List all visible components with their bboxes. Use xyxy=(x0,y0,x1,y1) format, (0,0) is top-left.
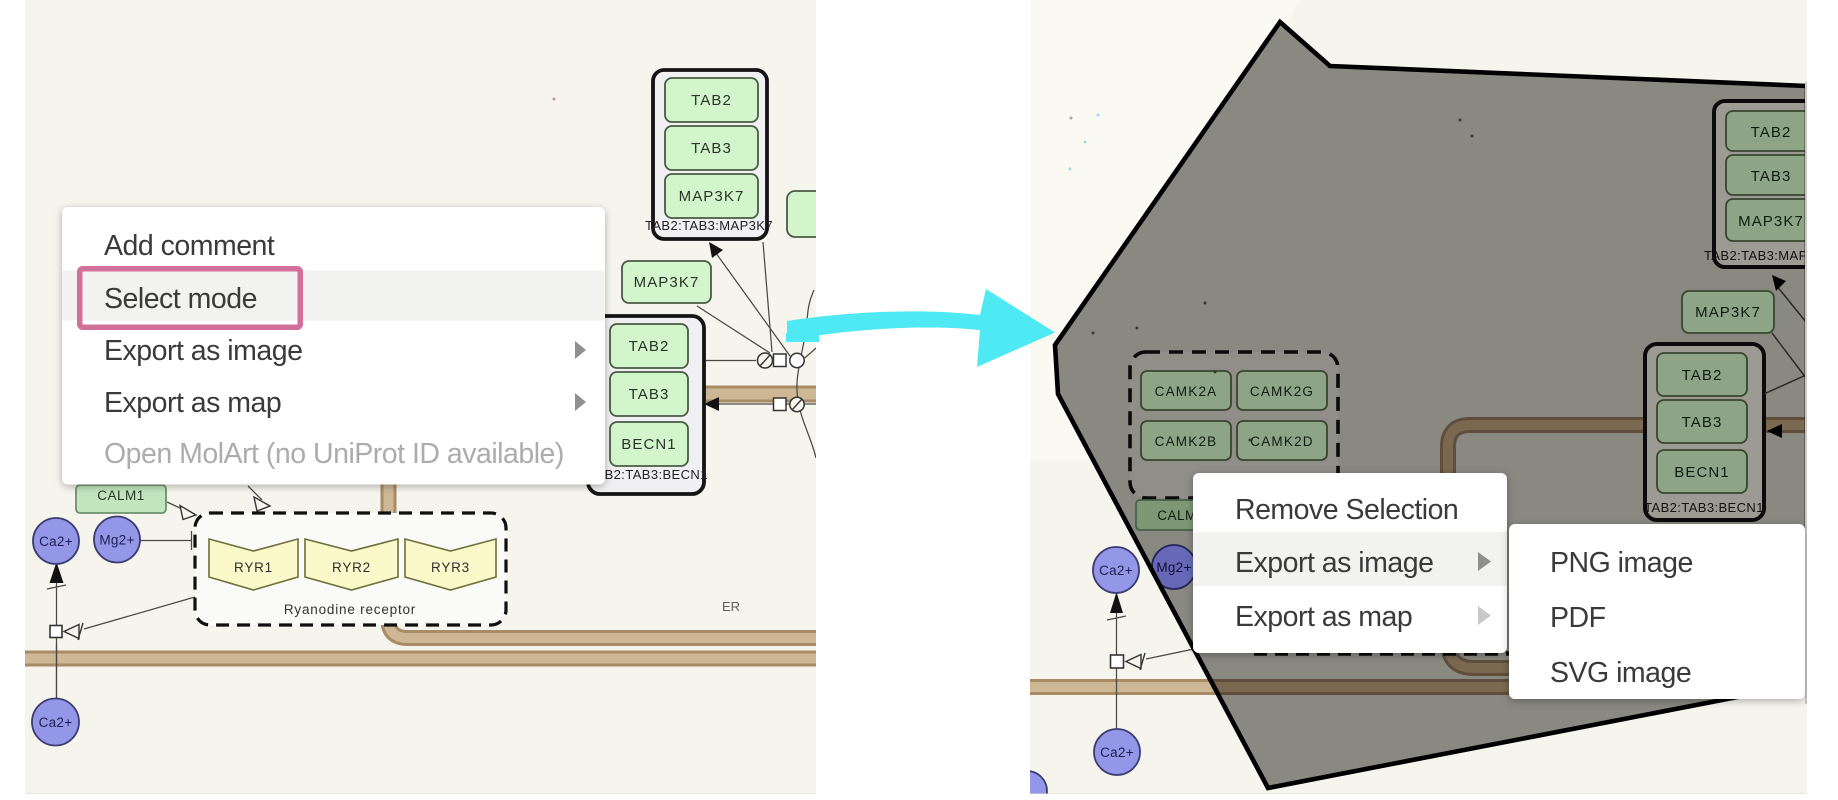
svg-text:CAMK2B: CAMK2B xyxy=(1155,434,1218,449)
svg-text:PNG image: PNG image xyxy=(1550,547,1693,579)
svg-text:MAP3K7: MAP3K7 xyxy=(1695,304,1761,321)
svg-text:Export as map: Export as map xyxy=(1235,601,1412,633)
svg-text:Open MolArt (no UniProt ID ava: Open MolArt (no UniProt ID available) xyxy=(104,438,564,470)
svg-text:Select mode: Select mode xyxy=(104,283,257,315)
svg-text:MAP3K7: MAP3K7 xyxy=(1738,213,1804,230)
svg-text:Ca2+: Ca2+ xyxy=(39,715,73,730)
svg-text:CAMK2D: CAMK2D xyxy=(1250,434,1313,449)
svg-text:ER: ER xyxy=(722,599,740,614)
svg-text:Add comment: Add comment xyxy=(104,230,275,262)
svg-text:MAP3K7: MAP3K7 xyxy=(679,188,745,205)
svg-text:TAB2: TAB2 xyxy=(629,338,670,355)
svg-text:TAB2:TAB3:MAP3K7: TAB2:TAB3:MAP3K7 xyxy=(1704,248,1832,263)
svg-text:Mg2+: Mg2+ xyxy=(99,533,134,548)
svg-text:TAB3: TAB3 xyxy=(1682,414,1723,431)
svg-text:SVG image: SVG image xyxy=(1550,657,1691,689)
svg-text:RYR1: RYR1 xyxy=(234,560,273,575)
svg-text:Export as image: Export as image xyxy=(1235,547,1433,579)
svg-text:Export as image: Export as image xyxy=(104,335,302,367)
svg-text:BECN1: BECN1 xyxy=(1674,464,1730,481)
svg-text:CAMK2G: CAMK2G xyxy=(1250,384,1314,399)
svg-text:MAP3K7: MAP3K7 xyxy=(634,274,700,291)
svg-text:Ca2+: Ca2+ xyxy=(1100,745,1134,760)
svg-text:TAB3: TAB3 xyxy=(1751,168,1792,185)
svg-text:CALM1: CALM1 xyxy=(97,488,145,503)
svg-text:TAB2:TAB3:BECN1: TAB2:TAB3:BECN1 xyxy=(1644,500,1764,515)
svg-text:BECN1: BECN1 xyxy=(621,436,677,453)
svg-text:TAB2:TAB3:MAP3K7: TAB2:TAB3:MAP3K7 xyxy=(645,218,773,233)
svg-text:Export as map: Export as map xyxy=(104,387,281,419)
svg-text:TAB2: TAB2 xyxy=(1751,124,1792,141)
svg-text:Mg2+: Mg2+ xyxy=(1156,560,1191,575)
svg-text:TAB2: TAB2 xyxy=(1682,367,1723,384)
svg-text:Ca2+: Ca2+ xyxy=(39,534,73,549)
svg-text:TAB3: TAB3 xyxy=(629,386,670,403)
svg-text:TAB2:TAB3:BECN1: TAB2:TAB3:BECN1 xyxy=(588,467,708,482)
svg-text:PDF: PDF xyxy=(1550,602,1606,634)
svg-text:RYR2: RYR2 xyxy=(332,560,371,575)
svg-text:RYR3: RYR3 xyxy=(431,560,470,575)
svg-text:TAB3: TAB3 xyxy=(691,140,732,157)
svg-text:Ca2+: Ca2+ xyxy=(1099,563,1133,578)
svg-text:CAMK2A: CAMK2A xyxy=(1155,384,1218,399)
svg-text:Remove Selection: Remove Selection xyxy=(1235,494,1458,526)
svg-text:Ryanodine receptor: Ryanodine receptor xyxy=(284,602,416,617)
svg-text:TAB2: TAB2 xyxy=(691,92,732,109)
